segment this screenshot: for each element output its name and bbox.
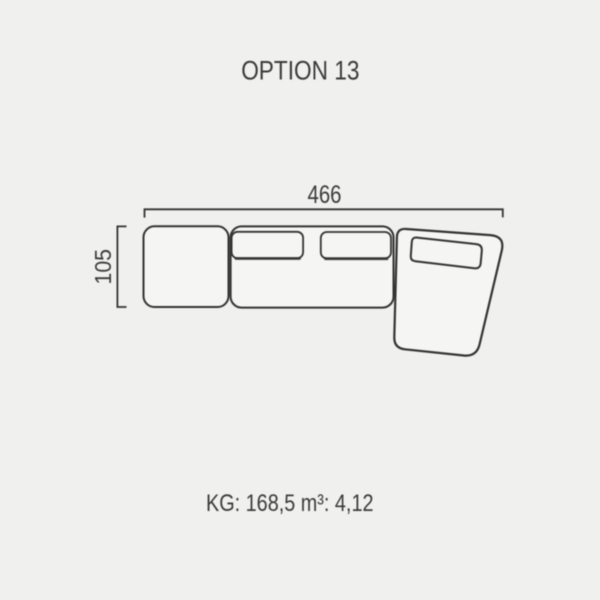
svg-text:OPTION 13: OPTION 13 (241, 55, 359, 86)
svg-text:105: 105 (90, 249, 116, 285)
svg-text:KG: 168,5 m³: 4,12: KG: 168,5 m³: 4,12 (206, 490, 374, 517)
svg-text:466: 466 (308, 181, 342, 209)
